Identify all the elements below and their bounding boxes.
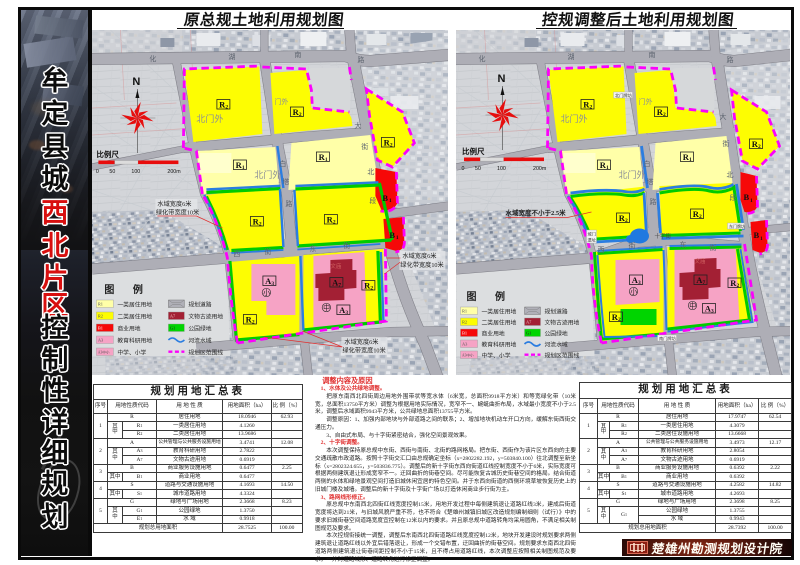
svg-text:塔: 塔 bbox=[282, 177, 289, 186]
svg-text:中: 中 bbox=[689, 301, 696, 310]
svg-text:3: 3 bbox=[345, 310, 348, 316]
svg-text:水域宽度不小于2.5米: 水域宽度不小于2.5米 bbox=[505, 208, 566, 217]
svg-text:2: 2 bbox=[625, 218, 628, 224]
svg-text:1: 1 bbox=[388, 198, 391, 204]
svg-text:北门牌坊: 北门牌坊 bbox=[615, 92, 632, 99]
svg-text:段: 段 bbox=[369, 196, 376, 205]
svg-text:文庙: 文庙 bbox=[330, 262, 341, 270]
svg-text:A7: A7 bbox=[526, 320, 532, 325]
svg-text:塔: 塔 bbox=[646, 177, 653, 186]
svg-text:2: 2 bbox=[618, 317, 621, 323]
svg-text:50: 50 bbox=[475, 166, 481, 172]
svg-text:教育科研用地: 教育科研用地 bbox=[117, 336, 152, 344]
svg-text:3: 3 bbox=[638, 280, 641, 286]
svg-text:1: 1 bbox=[395, 235, 398, 241]
svg-text:R2: R2 bbox=[97, 314, 102, 319]
svg-text:中: 中 bbox=[323, 303, 330, 312]
svg-text:2: 2 bbox=[370, 285, 373, 291]
svg-text:200m: 200m bbox=[167, 169, 181, 175]
svg-text:R1: R1 bbox=[462, 309, 467, 314]
svg-text:街: 街 bbox=[264, 247, 271, 256]
svg-text:2: 2 bbox=[251, 319, 254, 325]
svg-text:白: 白 bbox=[643, 159, 650, 168]
svg-text:门外: 门外 bbox=[638, 97, 652, 106]
svg-text:B: B bbox=[743, 192, 749, 202]
svg-text:水域宽度6米: 水域宽度6米 bbox=[157, 200, 191, 208]
svg-text:北: 北 bbox=[726, 171, 733, 179]
svg-text:规划道路: 规划道路 bbox=[544, 307, 567, 315]
svg-text:2: 2 bbox=[298, 112, 301, 118]
svg-text:公园绿地: 公园绿地 bbox=[544, 329, 567, 337]
svg-text:中学、小学: 中学、小学 bbox=[117, 348, 146, 356]
svg-text:街: 街 bbox=[628, 241, 635, 250]
svg-text:0: 0 bbox=[461, 166, 464, 172]
svg-text:1: 1 bbox=[241, 165, 244, 171]
svg-text:100: 100 bbox=[497, 166, 506, 172]
svg-text:绿化带宽度10米: 绿化带宽度10米 bbox=[400, 261, 443, 269]
svg-text:B1: B1 bbox=[462, 331, 467, 336]
svg-text:北: 北 bbox=[367, 168, 374, 176]
svg-text:A7: A7 bbox=[169, 314, 175, 319]
svg-text:遗址: 遗址 bbox=[587, 237, 596, 244]
svg-text:东: 东 bbox=[679, 240, 686, 249]
svg-text:B: B bbox=[389, 230, 395, 240]
svg-text:北门外: 北门外 bbox=[254, 169, 281, 180]
svg-text:A3: A3 bbox=[462, 342, 468, 347]
svg-text:1: 1 bbox=[760, 236, 763, 242]
svg-text:水域宽度6米: 水域宽度6米 bbox=[402, 252, 436, 260]
svg-text:3: 3 bbox=[711, 308, 714, 314]
svg-text:2: 2 bbox=[258, 221, 261, 227]
svg-text:7: 7 bbox=[338, 282, 341, 288]
svg-text:2: 2 bbox=[699, 214, 702, 220]
svg-text:湖: 湖 bbox=[567, 52, 574, 61]
svg-text:二类居住用地: 二类居住用地 bbox=[117, 312, 152, 320]
svg-text:B: B bbox=[753, 230, 759, 240]
svg-text:路: 路 bbox=[649, 197, 656, 206]
svg-text:2: 2 bbox=[389, 142, 392, 148]
svg-text:图 例: 图 例 bbox=[104, 283, 150, 296]
svg-text:N: N bbox=[132, 76, 140, 88]
svg-text:A3: A3 bbox=[97, 338, 103, 343]
svg-text:100: 100 bbox=[131, 169, 140, 175]
svg-text:水域宽度6米: 水域宽度6米 bbox=[344, 338, 378, 346]
svg-text:0: 0 bbox=[95, 169, 98, 175]
svg-text:小: 小 bbox=[263, 288, 270, 297]
svg-text:R2: R2 bbox=[462, 320, 467, 325]
svg-text:湖: 湖 bbox=[228, 52, 235, 61]
svg-text:G1: G1 bbox=[169, 326, 174, 331]
svg-text:B: B bbox=[382, 193, 388, 203]
svg-text:规划道路: 规划道路 bbox=[188, 300, 211, 308]
svg-text:200m: 200m bbox=[533, 166, 547, 172]
svg-text:2: 2 bbox=[663, 112, 666, 118]
svg-text:教育科研用地: 教育科研用地 bbox=[481, 340, 516, 348]
svg-text:规划区范围线: 规划区范围线 bbox=[544, 351, 579, 359]
svg-text:2: 2 bbox=[225, 104, 228, 110]
svg-text:商业用地: 商业用地 bbox=[481, 329, 504, 337]
svg-text:西: 西 bbox=[597, 246, 604, 254]
svg-text:段: 段 bbox=[729, 193, 736, 202]
svg-text:2: 2 bbox=[589, 104, 592, 110]
svg-text:南: 南 bbox=[648, 50, 655, 59]
svg-text:一类居住用地: 一类居住用地 bbox=[117, 300, 152, 308]
svg-text:二类居住用地: 二类居住用地 bbox=[481, 318, 516, 326]
svg-text:大: 大 bbox=[354, 121, 361, 130]
svg-text:文物古迹用地: 文物古迹用地 bbox=[188, 312, 223, 320]
svg-text:G1: G1 bbox=[526, 331, 531, 336]
svg-text:R1: R1 bbox=[97, 302, 102, 307]
svg-text:3: 3 bbox=[271, 281, 274, 287]
svg-text:街: 街 bbox=[361, 142, 368, 151]
svg-text:北门外: 北门外 bbox=[560, 113, 587, 124]
svg-text:西: 西 bbox=[233, 250, 240, 258]
svg-text:文庙: 文庙 bbox=[694, 257, 706, 265]
svg-text:A3中小: A3中小 bbox=[97, 350, 109, 355]
svg-text:大: 大 bbox=[719, 112, 726, 121]
svg-text:绿化带宽度10米: 绿化带宽度10米 bbox=[342, 346, 385, 354]
svg-text:1: 1 bbox=[750, 198, 753, 204]
svg-text:路: 路 bbox=[726, 55, 733, 64]
svg-text:规划区范围线: 规划区范围线 bbox=[188, 348, 223, 356]
svg-text:7: 7 bbox=[702, 280, 705, 286]
svg-text:东门牌坊: 东门牌坊 bbox=[729, 223, 745, 229]
svg-text:东: 东 bbox=[309, 244, 316, 253]
svg-text:街: 街 bbox=[709, 243, 716, 252]
svg-text:路: 路 bbox=[357, 55, 364, 64]
svg-text:十字街: 十字街 bbox=[654, 232, 671, 240]
svg-text:街: 街 bbox=[343, 241, 350, 250]
svg-text:2: 2 bbox=[758, 144, 761, 150]
svg-text:比例尺: 比例尺 bbox=[462, 146, 485, 156]
svg-text:1: 1 bbox=[324, 157, 327, 163]
svg-text:一类居住用地: 一类居住用地 bbox=[481, 307, 516, 315]
svg-text:化: 化 bbox=[149, 54, 156, 63]
svg-text:南: 南 bbox=[294, 50, 301, 59]
svg-text:公园绿地: 公园绿地 bbox=[188, 324, 211, 332]
svg-text:小: 小 bbox=[630, 287, 637, 296]
svg-text:街: 街 bbox=[722, 139, 729, 148]
svg-text:路: 路 bbox=[285, 199, 292, 208]
svg-text:南门牌坊: 南门牌坊 bbox=[659, 335, 676, 342]
svg-text:门外: 门外 bbox=[274, 97, 288, 106]
svg-text:比例尺: 比例尺 bbox=[96, 149, 119, 159]
svg-text:图 例: 图 例 bbox=[466, 290, 513, 303]
svg-text:B1: B1 bbox=[97, 326, 102, 331]
svg-text:中学、小学: 中学、小学 bbox=[481, 351, 510, 359]
svg-text:文物古迹用地: 文物古迹用地 bbox=[544, 318, 579, 326]
svg-text:N: N bbox=[497, 73, 505, 85]
svg-text:2: 2 bbox=[332, 219, 335, 225]
svg-text:河流水域: 河流水域 bbox=[188, 336, 211, 344]
svg-text:2: 2 bbox=[736, 283, 739, 289]
svg-text:A3中小: A3中小 bbox=[462, 353, 474, 358]
svg-text:化: 化 bbox=[478, 54, 485, 63]
svg-text:50: 50 bbox=[109, 169, 115, 175]
svg-text:商业用地: 商业用地 bbox=[117, 324, 140, 332]
svg-text:北门外: 北门外 bbox=[618, 169, 645, 180]
svg-text:绿化带宽度10米: 绿化带宽度10米 bbox=[155, 208, 198, 216]
svg-text:1: 1 bbox=[689, 157, 692, 163]
svg-text:白: 白 bbox=[279, 159, 286, 168]
svg-text:北门外: 北门外 bbox=[196, 113, 223, 124]
svg-text:1: 1 bbox=[606, 165, 609, 171]
svg-text:河流水域: 河流水域 bbox=[544, 340, 567, 348]
svg-text:城门: 城门 bbox=[587, 231, 595, 238]
